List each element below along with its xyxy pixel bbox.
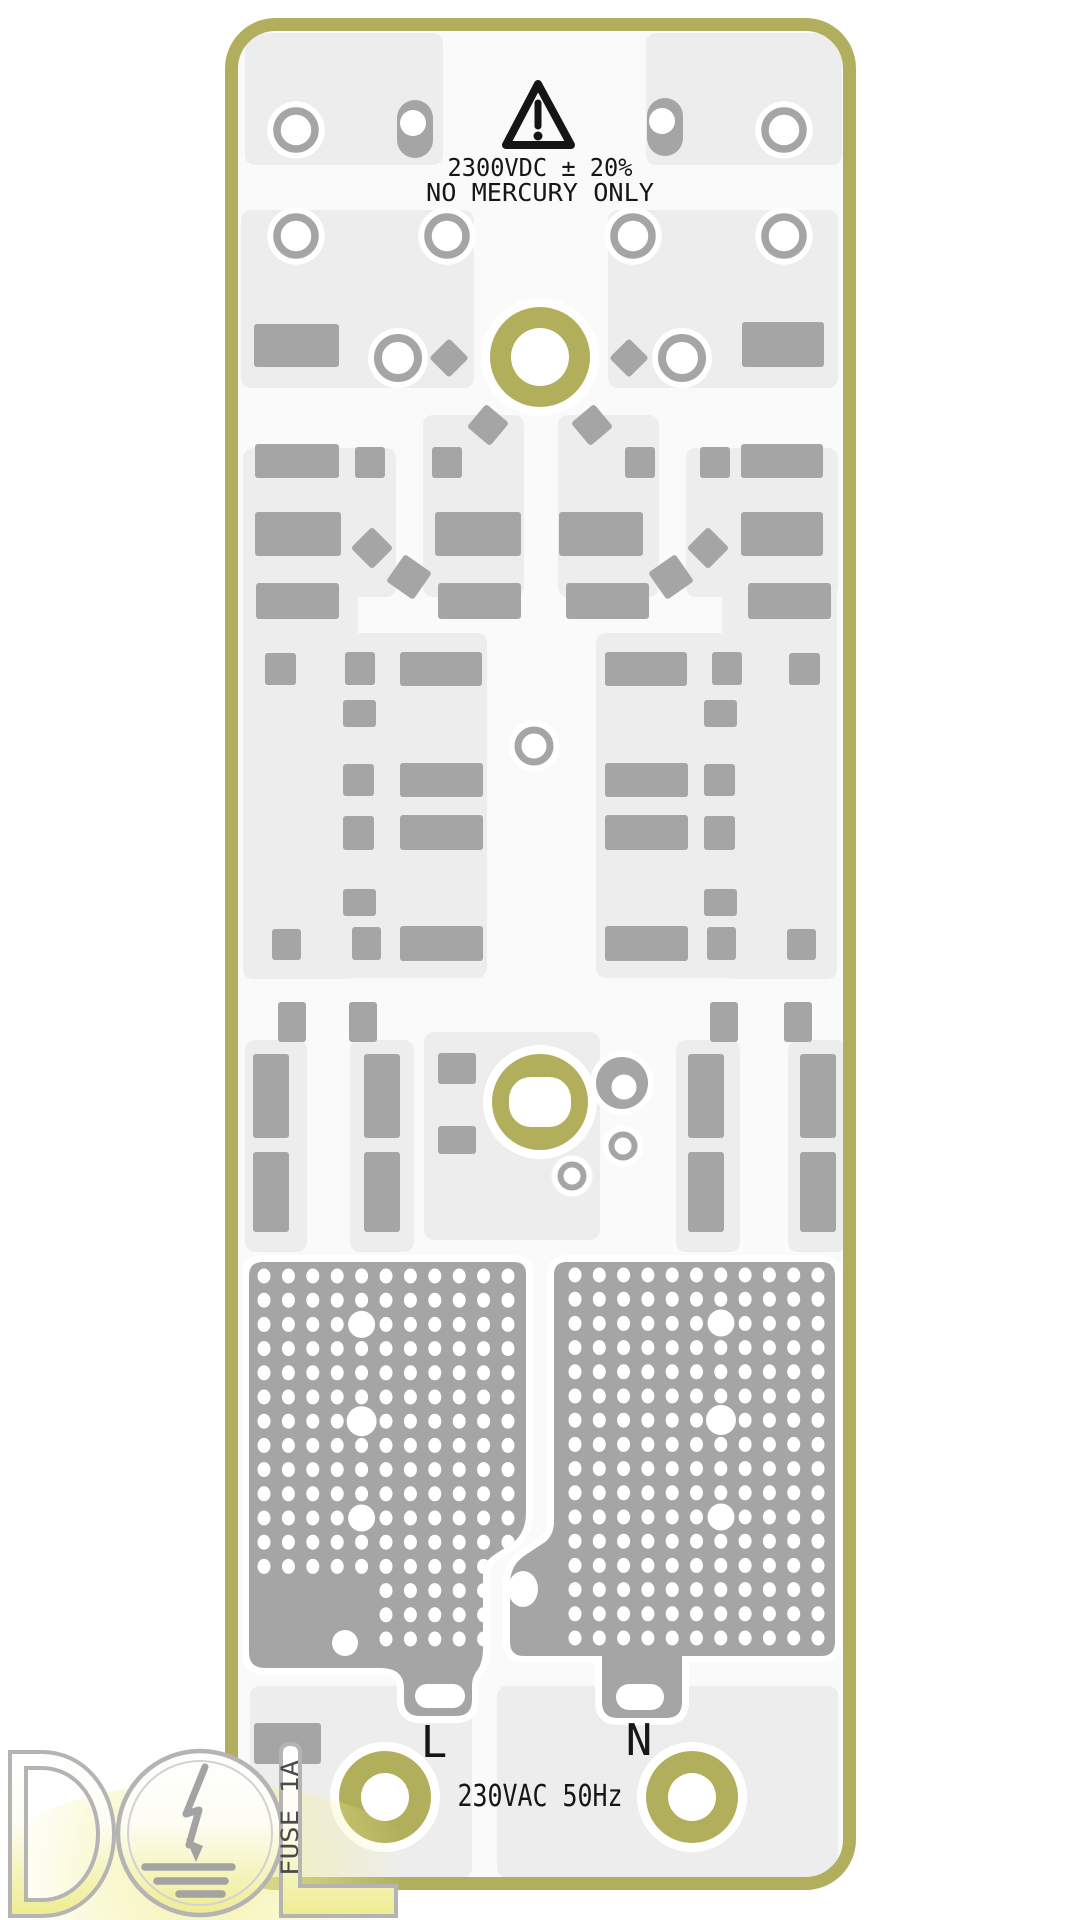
thermal-dot <box>739 1292 752 1307</box>
smd-pad <box>278 1002 306 1042</box>
smd-pad <box>605 926 688 961</box>
thermal-dot <box>641 1510 654 1525</box>
thermal-dot <box>282 1390 295 1405</box>
pour-via-hole <box>348 1311 375 1338</box>
thermal-dot <box>477 1269 490 1284</box>
through-hole-pad <box>518 730 550 762</box>
thermal-dot <box>617 1268 630 1283</box>
smd-pad <box>566 583 649 619</box>
thermal-dot <box>641 1364 654 1379</box>
thermal-dot <box>593 1340 606 1355</box>
smd-pad <box>253 1152 289 1232</box>
thermal-dot <box>666 1316 679 1331</box>
thermal-dot <box>477 1462 490 1477</box>
smd-pad <box>364 1054 400 1138</box>
thermal-dot <box>617 1461 630 1476</box>
thermal-dot <box>666 1510 679 1525</box>
thermal-dot <box>453 1269 466 1284</box>
thermal-dot <box>787 1485 800 1500</box>
thermal-dot <box>306 1317 319 1332</box>
mount-hole-bore <box>511 328 569 386</box>
thermal-dot <box>453 1365 466 1380</box>
mount-hole-bore <box>509 1077 571 1127</box>
thermal-dot <box>453 1632 466 1647</box>
thermal-dot <box>404 1414 417 1429</box>
thermal-dot <box>763 1534 776 1549</box>
smd-pad <box>343 700 376 727</box>
thermal-dot <box>641 1461 654 1476</box>
thermal-dot <box>641 1292 654 1307</box>
thermal-dot <box>641 1534 654 1549</box>
thermal-dot <box>739 1558 752 1573</box>
thermal-dot <box>690 1606 703 1621</box>
smd-pad <box>800 1054 836 1138</box>
thermal-dot <box>282 1317 295 1332</box>
thermal-dot <box>690 1268 703 1283</box>
thermal-dot <box>404 1365 417 1380</box>
thermal-dot <box>714 1268 727 1283</box>
thermal-dot <box>453 1293 466 1308</box>
thermal-dot <box>666 1389 679 1404</box>
thermal-dot <box>380 1438 393 1453</box>
thermal-dot <box>593 1461 606 1476</box>
thermal-dot <box>641 1558 654 1573</box>
thermal-dot <box>502 1438 515 1453</box>
thermal-dot <box>763 1413 776 1428</box>
thermal-dot <box>453 1511 466 1526</box>
thermal-dot <box>714 1389 727 1404</box>
thermal-dot <box>690 1316 703 1331</box>
thermal-dot <box>739 1582 752 1597</box>
thermal-dot <box>569 1606 582 1621</box>
thermal-dot <box>666 1582 679 1597</box>
thermal-dot <box>569 1461 582 1476</box>
thermal-dot <box>617 1510 630 1525</box>
pcb-screenshot: 2300VDC ± 20% NO MERCURY ONLY L N 230VAC… <box>0 0 1080 1920</box>
thermal-dot <box>306 1414 319 1429</box>
thermal-dot <box>453 1535 466 1550</box>
thermal-dot <box>641 1389 654 1404</box>
thermal-dot <box>690 1534 703 1549</box>
smd-pad <box>355 447 385 478</box>
thermal-dot <box>355 1341 368 1356</box>
thermal-dot <box>355 1293 368 1308</box>
right-copper-pour <box>508 1262 835 1718</box>
thermal-dot <box>477 1365 490 1380</box>
thermal-dot <box>641 1413 654 1428</box>
thermal-dot <box>569 1292 582 1307</box>
thermal-dot <box>787 1606 800 1621</box>
mount-hole-bore <box>668 1773 716 1821</box>
thermal-dot <box>331 1438 344 1453</box>
thermal-dot <box>690 1340 703 1355</box>
thermal-dot <box>428 1535 441 1550</box>
thermal-dot <box>787 1631 800 1646</box>
thermal-dot <box>258 1365 271 1380</box>
thermal-dot <box>593 1534 606 1549</box>
thermal-dot <box>569 1364 582 1379</box>
thermal-dot <box>404 1317 417 1332</box>
thermal-dot <box>331 1390 344 1405</box>
thermal-dot <box>763 1316 776 1331</box>
thermal-dot <box>258 1559 271 1574</box>
thermal-dot <box>617 1582 630 1597</box>
thermal-dot <box>617 1413 630 1428</box>
thermal-dot <box>690 1364 703 1379</box>
thermal-dot <box>739 1437 752 1452</box>
smd-pad <box>254 324 339 367</box>
pour-round-hole <box>508 1571 538 1607</box>
thermal-dot <box>477 1293 490 1308</box>
smd-pad <box>748 583 831 619</box>
thermal-dot <box>282 1559 295 1574</box>
pour-via-hole <box>708 1310 735 1337</box>
through-hole-pad <box>765 111 803 149</box>
thermal-dot <box>428 1365 441 1380</box>
thermal-dot <box>404 1583 417 1598</box>
thermal-dot <box>258 1486 271 1501</box>
live-terminal-label: L <box>421 1717 448 1768</box>
thermal-dot <box>714 1461 727 1476</box>
thermal-dot <box>306 1511 319 1526</box>
thermal-dot <box>502 1341 515 1356</box>
thermal-dot <box>355 1269 368 1284</box>
thermal-dot <box>739 1485 752 1500</box>
thermal-dot <box>569 1340 582 1355</box>
thermal-dot <box>690 1582 703 1597</box>
through-hole-pad <box>561 1165 584 1188</box>
thermal-dot <box>763 1461 776 1476</box>
courtyard-panel <box>423 415 524 597</box>
thermal-dot <box>690 1389 703 1404</box>
thermal-dot <box>739 1413 752 1428</box>
thermal-dot <box>380 1390 393 1405</box>
thermal-dot <box>714 1485 727 1500</box>
smd-pad <box>712 652 742 685</box>
smd-pad <box>349 1002 377 1042</box>
thermal-dot <box>739 1534 752 1549</box>
thermal-dot <box>428 1583 441 1598</box>
thermal-dot <box>453 1317 466 1332</box>
smd-pad <box>432 447 462 478</box>
thermal-dot <box>593 1292 606 1307</box>
thermal-dot <box>569 1413 582 1428</box>
thermal-dot <box>617 1485 630 1500</box>
pour-via-hole <box>347 1406 377 1436</box>
donut-hole <box>612 1075 637 1100</box>
thermal-dot <box>453 1583 466 1598</box>
thermal-dot <box>714 1292 727 1307</box>
thermal-dot <box>569 1631 582 1646</box>
thermal-dot <box>258 1438 271 1453</box>
pour-slot-hole <box>415 1684 465 1708</box>
thermal-dot <box>404 1607 417 1622</box>
thermal-dot <box>428 1269 441 1284</box>
thermal-dot <box>569 1582 582 1597</box>
smd-pad <box>343 764 374 796</box>
thermal-dot <box>714 1582 727 1597</box>
thermal-dot <box>569 1558 582 1573</box>
thermal-dot <box>258 1317 271 1332</box>
thermal-dot <box>593 1558 606 1573</box>
smd-pad <box>435 512 521 556</box>
smd-pad <box>255 444 339 478</box>
thermal-dot <box>306 1438 319 1453</box>
thermal-dot <box>502 1486 515 1501</box>
thermal-dot <box>812 1268 825 1283</box>
thermal-dot <box>787 1413 800 1428</box>
pour-slot-hole <box>616 1684 664 1710</box>
thermal-dot <box>690 1510 703 1525</box>
thermal-dot <box>428 1438 441 1453</box>
thermal-dot <box>355 1438 368 1453</box>
thermal-dot <box>380 1462 393 1477</box>
thermal-dot <box>502 1269 515 1284</box>
through-hole-pad <box>428 217 466 255</box>
thermal-dot <box>355 1486 368 1501</box>
thermal-dot <box>404 1269 417 1284</box>
smd-pad <box>704 816 735 850</box>
left-copper-pour <box>249 1262 526 1716</box>
smd-pad <box>265 653 296 685</box>
smd-pad <box>605 652 687 686</box>
thermal-dot <box>502 1462 515 1477</box>
smd-pad <box>800 1152 836 1232</box>
thermal-dot <box>593 1606 606 1621</box>
smd-pad <box>784 1002 812 1042</box>
pcb-drawing: 2300VDC ± 20% NO MERCURY ONLY L N 230VAC… <box>0 0 1080 1920</box>
thermal-dot <box>282 1269 295 1284</box>
thermal-dot <box>404 1632 417 1647</box>
smd-pad <box>707 927 736 960</box>
thermal-dot <box>690 1631 703 1646</box>
thermal-dot <box>739 1461 752 1476</box>
smd-pad <box>741 512 823 556</box>
smd-pad <box>605 763 688 797</box>
stadium-pad-hole <box>400 110 426 136</box>
thermal-dot <box>812 1389 825 1404</box>
board-layer <box>232 25 850 1884</box>
thermal-dot <box>355 1390 368 1405</box>
smd-pad <box>438 1053 476 1084</box>
thermal-dot <box>428 1511 441 1526</box>
thermal-dot <box>502 1293 515 1308</box>
warning-exclamation-dot <box>534 132 543 141</box>
thermal-dot <box>477 1486 490 1501</box>
thermal-dot <box>617 1558 630 1573</box>
thermal-dot <box>428 1414 441 1429</box>
thermal-dot <box>331 1365 344 1380</box>
thermal-dot <box>641 1485 654 1500</box>
smd-pad <box>789 653 820 685</box>
thermal-dot <box>787 1340 800 1355</box>
thermal-dot <box>641 1340 654 1355</box>
through-hole-pad <box>612 1135 635 1158</box>
thermal-dot <box>690 1485 703 1500</box>
thermal-dot <box>380 1365 393 1380</box>
smd-pad <box>700 447 730 478</box>
thermal-dot <box>502 1317 515 1332</box>
thermal-dot <box>404 1390 417 1405</box>
thermal-dot <box>812 1461 825 1476</box>
thermal-dot <box>258 1511 271 1526</box>
thermal-dot <box>739 1510 752 1525</box>
thermal-dot <box>666 1558 679 1573</box>
thermal-dot <box>763 1485 776 1500</box>
thermal-dot <box>812 1292 825 1307</box>
smd-pad <box>255 512 341 556</box>
thermal-dot <box>380 1511 393 1526</box>
thermal-dot <box>690 1461 703 1476</box>
thermal-dot <box>428 1559 441 1574</box>
thermal-dot <box>477 1438 490 1453</box>
thermal-dot <box>739 1389 752 1404</box>
thermal-dot <box>355 1365 368 1380</box>
thermal-dot <box>380 1269 393 1284</box>
thermal-dot <box>355 1535 368 1550</box>
thermal-dot <box>666 1606 679 1621</box>
thermal-dot <box>763 1364 776 1379</box>
thermal-dot <box>763 1631 776 1646</box>
smd-pad <box>343 889 376 916</box>
thermal-dot <box>787 1534 800 1549</box>
thermal-dot <box>282 1365 295 1380</box>
smd-pad <box>704 764 735 796</box>
thermal-dot <box>331 1462 344 1477</box>
thermal-dot <box>714 1340 727 1355</box>
thermal-dot <box>666 1631 679 1646</box>
neutral-terminal-label: N <box>626 1715 653 1766</box>
thermal-dot <box>617 1364 630 1379</box>
thermal-dot <box>569 1485 582 1500</box>
thermal-dot <box>282 1341 295 1356</box>
thermal-dot <box>453 1390 466 1405</box>
thermal-dot <box>812 1582 825 1597</box>
thermal-dot <box>331 1317 344 1332</box>
thermal-dot <box>812 1437 825 1452</box>
thermal-dot <box>477 1317 490 1332</box>
thermal-dot <box>569 1316 582 1331</box>
thermal-dot <box>404 1293 417 1308</box>
thermal-dot <box>477 1390 490 1405</box>
thermal-dot <box>331 1486 344 1501</box>
thermal-dot <box>477 1341 490 1356</box>
thermal-dot <box>666 1292 679 1307</box>
thermal-dot <box>502 1390 515 1405</box>
thermal-dot <box>569 1534 582 1549</box>
thermal-dot <box>593 1389 606 1404</box>
thermal-dot <box>502 1365 515 1380</box>
thermal-dot <box>453 1607 466 1622</box>
thermal-dot <box>617 1389 630 1404</box>
thermal-dot <box>502 1511 515 1526</box>
thermal-dot <box>666 1268 679 1283</box>
thermal-dot <box>812 1606 825 1621</box>
thermal-dot <box>428 1341 441 1356</box>
thermal-dot <box>787 1582 800 1597</box>
thermal-dot <box>282 1511 295 1526</box>
thermal-dot <box>593 1437 606 1452</box>
through-hole-pad <box>765 217 803 255</box>
smd-pad <box>400 763 483 797</box>
thermal-dot <box>569 1268 582 1283</box>
thermal-dot <box>282 1486 295 1501</box>
thermal-dot <box>812 1534 825 1549</box>
thermal-dot <box>258 1414 271 1429</box>
thermal-dot <box>617 1437 630 1452</box>
thermal-dot <box>666 1534 679 1549</box>
thermal-dot <box>404 1341 417 1356</box>
thermal-dot <box>739 1340 752 1355</box>
smd-pad <box>704 700 737 727</box>
thermal-dot <box>380 1535 393 1550</box>
thermal-dot <box>690 1413 703 1428</box>
thermal-dot <box>331 1511 344 1526</box>
warning-mercury-text: NO MERCURY ONLY <box>426 178 654 207</box>
thermal-dot <box>428 1632 441 1647</box>
thermal-dot <box>787 1292 800 1307</box>
smd-pad <box>400 926 483 961</box>
smd-pad <box>438 1126 476 1154</box>
thermal-dot <box>641 1582 654 1597</box>
thermal-dot <box>306 1269 319 1284</box>
thermal-dot <box>593 1631 606 1646</box>
thermal-dot <box>812 1485 825 1500</box>
thermal-dot <box>282 1535 295 1550</box>
smd-pad <box>688 1054 724 1138</box>
thermal-dot <box>812 1631 825 1646</box>
thermal-dot <box>331 1341 344 1356</box>
thermal-dot <box>380 1486 393 1501</box>
thermal-dot <box>714 1364 727 1379</box>
thermal-dot <box>641 1316 654 1331</box>
smd-pad <box>400 815 483 850</box>
thermal-dot <box>258 1269 271 1284</box>
thermal-dot <box>787 1437 800 1452</box>
thermal-dot <box>258 1535 271 1550</box>
thermal-dot <box>453 1559 466 1574</box>
thermal-dot <box>787 1389 800 1404</box>
thermal-dot <box>331 1293 344 1308</box>
thermal-dot <box>428 1486 441 1501</box>
thermal-dot <box>666 1485 679 1500</box>
thermal-dot <box>306 1559 319 1574</box>
thermal-dot <box>714 1534 727 1549</box>
thermal-dot <box>380 1559 393 1574</box>
thermal-dot <box>641 1437 654 1452</box>
thermal-dot <box>763 1582 776 1597</box>
thermal-dot <box>306 1390 319 1405</box>
smd-pad <box>400 652 482 686</box>
thermal-dot <box>593 1316 606 1331</box>
thermal-dot <box>593 1485 606 1500</box>
thermal-dot <box>428 1607 441 1622</box>
smd-pad <box>688 1152 724 1232</box>
thermal-dot <box>355 1462 368 1477</box>
thermal-dot <box>404 1511 417 1526</box>
thermal-dot <box>258 1293 271 1308</box>
smd-pad <box>364 1152 400 1232</box>
thermal-dot <box>714 1558 727 1573</box>
thermal-dot <box>306 1486 319 1501</box>
thermal-dot <box>380 1341 393 1356</box>
thermal-dot <box>812 1413 825 1428</box>
stadium-pad-hole <box>649 108 675 134</box>
smd-pad <box>704 889 737 916</box>
thermal-dot <box>331 1535 344 1550</box>
fuse-rating-label: FUSE 1A <box>276 1759 304 1876</box>
smd-pad <box>742 322 824 367</box>
